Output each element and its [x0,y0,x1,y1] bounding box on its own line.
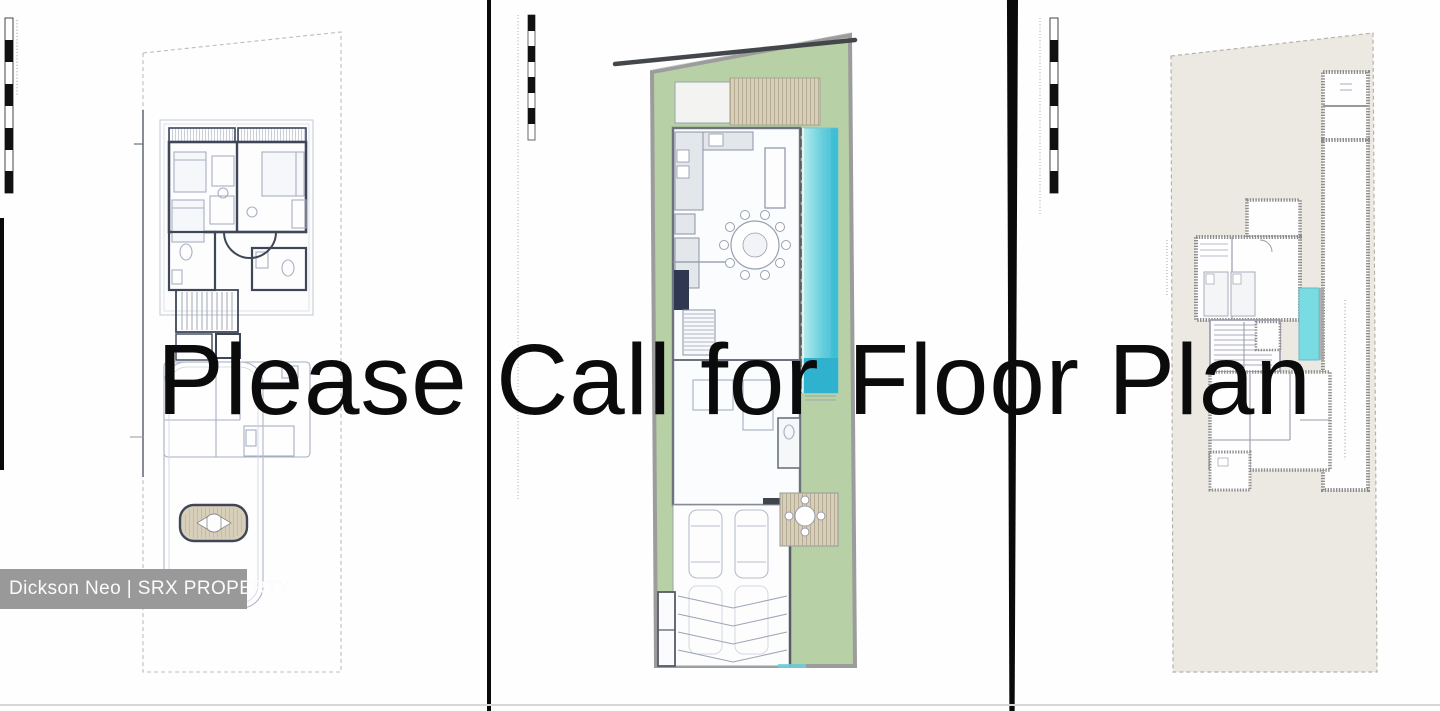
scale-bar-icon [5,18,17,193]
store-room [675,82,730,123]
bay-window [180,505,247,541]
car-porch [658,505,790,666]
edge-mark [0,218,4,470]
kitchen-island [765,148,785,208]
overlay-title: Please Call for Floor Plan [157,330,1312,430]
pool-edge-mark [778,664,806,668]
floor-plan-collage: Please Call for Floor Plan Dickson Neo |… [0,0,1440,711]
patio-deck [780,493,838,546]
timber-deck [730,78,820,125]
balcony-right [238,128,306,142]
scale-bar-icon [1050,18,1058,193]
watermark-badge: Dickson Neo | SRX PROPERTY [0,569,247,609]
watermark-text: Dickson Neo | SRX PROPERTY [0,578,291,600]
scale-bar-icon [528,15,535,140]
bottom-rule [0,704,1440,706]
balcony-left [169,128,235,142]
